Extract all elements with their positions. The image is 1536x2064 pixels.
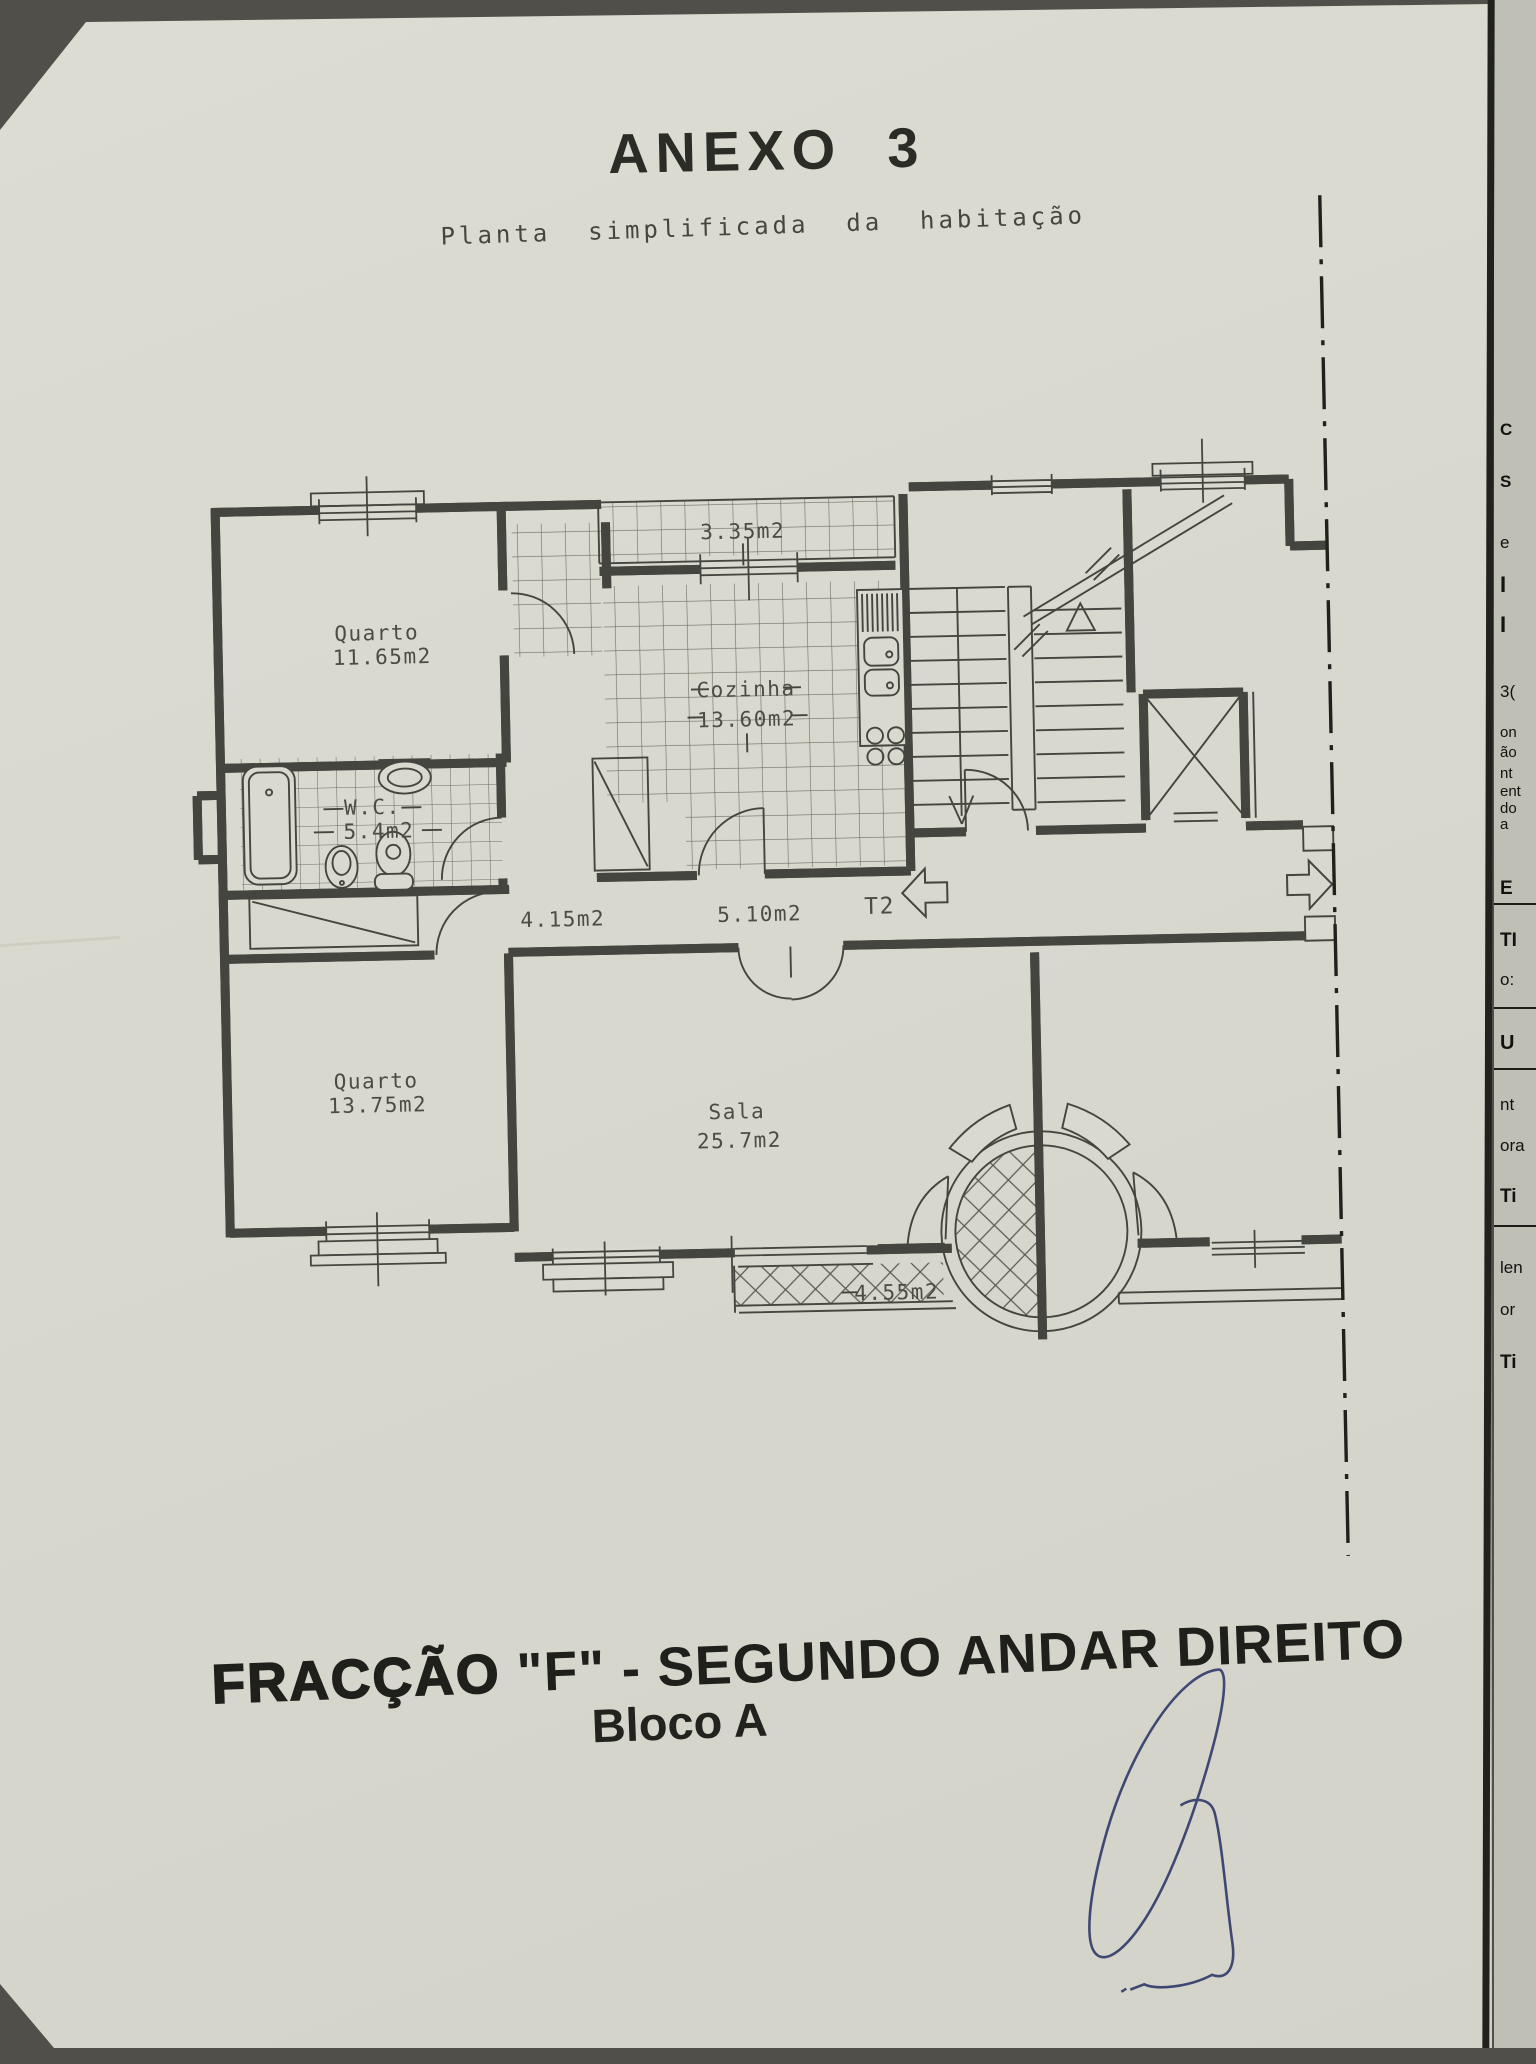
window-sala-bay [543,1240,674,1297]
label-corredor: 5.10m2 [717,901,802,927]
window-quarto2 [310,1211,447,1288]
label-hall: 4.15m2 [520,906,605,932]
label-varanda-bottom: 4.55m2 [854,1279,939,1305]
door-arc-quarto2 [435,892,498,955]
window-quarto1 [310,475,424,537]
entry-arrow-right [1287,860,1333,909]
kitchen-sink [857,589,906,746]
bathtub [243,766,297,885]
label-wc-area: 5.4m2 [343,818,414,843]
label-varanda-top: 3.35m2 [700,519,785,545]
double-door-sala [738,945,844,1000]
window-neighbor [1211,1229,1305,1269]
entry-arrow-left [902,868,948,917]
entry-arrows [902,860,1333,917]
bidet [325,846,358,889]
label-sala-name: Sala [708,1099,765,1124]
label-unit-type: T2 [864,893,895,920]
staircase [905,495,1239,825]
label-quarto1-area: 11.65m2 [332,644,431,670]
stair-up-arrow [1066,603,1095,631]
tiled-floors [234,494,1043,1333]
label-quarto2-area: 13.75m2 [328,1092,427,1118]
window-top-right [1152,438,1253,504]
stair-down-arrow [945,588,974,824]
label-cozinha-area: 13.60m2 [697,706,796,732]
label-wc-name: W.C. [344,795,401,820]
scanned-floorplan-document: { "document": { "title": "ANEXO 3", "sub… [0,0,1536,2048]
label-quarto1-name: Quarto [334,620,419,646]
window-stairwell [992,474,1052,495]
label-sala-area: 25.7m2 [697,1128,782,1154]
door-arc-entry [965,769,1028,832]
page-content: ANEXO 3 Planta simplificada da habitação [0,0,1536,2064]
door-arc-balcony-right [1133,1172,1176,1240]
label-quarto2-name: Quarto [333,1068,418,1094]
label-cozinha-name: Cozinha [696,676,795,702]
elevator [1143,692,1256,822]
